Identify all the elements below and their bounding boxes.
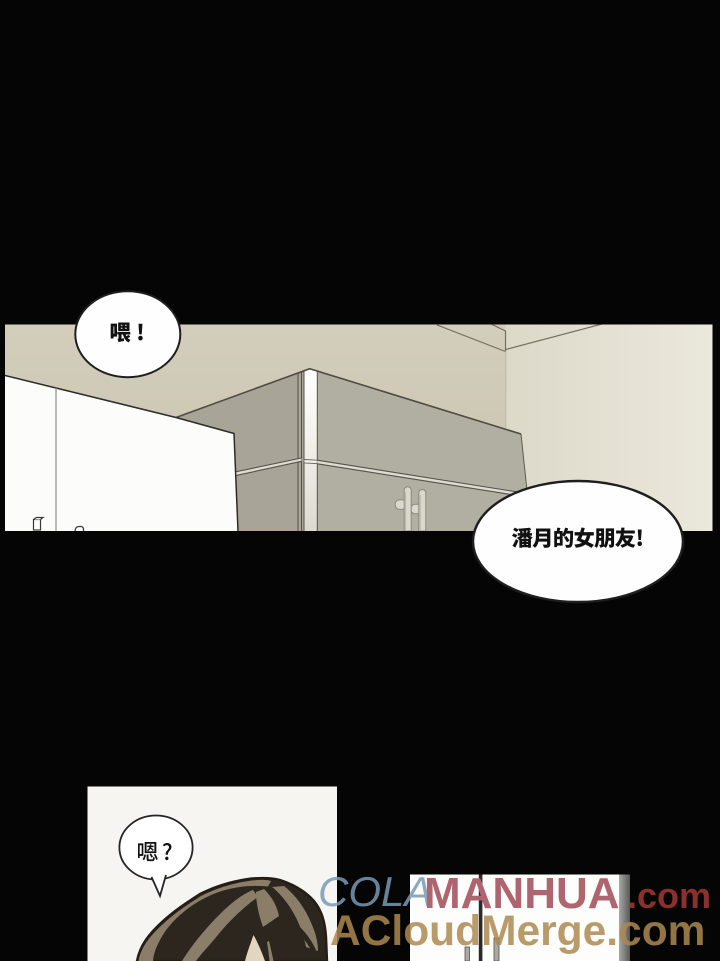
svg-text:ACloudMerge.com: ACloudMerge.com bbox=[330, 908, 705, 955]
